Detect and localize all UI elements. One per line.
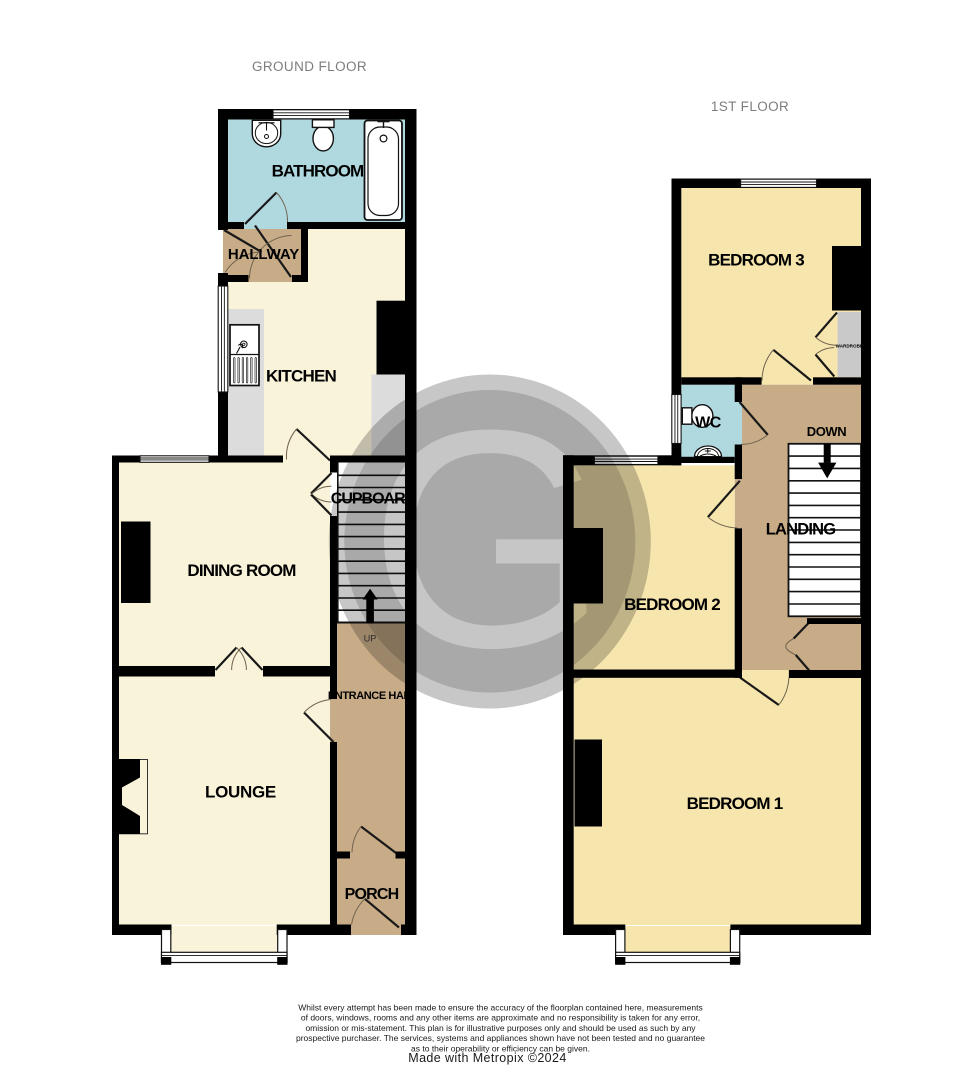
svg-text:DOWN: DOWN (807, 424, 847, 439)
svg-text:WC: WC (695, 415, 722, 432)
svg-text:BEDROOM 3: BEDROOM 3 (708, 251, 804, 270)
svg-text:BATHROOM: BATHROOM (272, 162, 364, 181)
svg-text:LOUNGE: LOUNGE (205, 783, 276, 802)
svg-text:PORCH: PORCH (345, 886, 399, 903)
svg-text:BEDROOM 1: BEDROOM 1 (687, 794, 783, 813)
svg-text:1ST FLOOR: 1ST FLOOR (711, 99, 789, 114)
svg-text:Made with Metropix ©2024: Made with Metropix ©2024 (408, 1051, 566, 1065)
svg-text:GROUND FLOOR: GROUND FLOOR (252, 59, 367, 74)
svg-text:HALLWAY: HALLWAY (228, 246, 299, 263)
svg-text:of doors, windows, rooms and a: of doors, windows, rooms and any other i… (301, 1013, 700, 1023)
svg-text:KITCHEN: KITCHEN (266, 367, 336, 386)
svg-text:prospective purchaser. The ser: prospective purchaser. The services, sys… (296, 1033, 705, 1043)
svg-text:DINING ROOM: DINING ROOM (187, 561, 296, 580)
svg-text:WARDROBE: WARDROBE (836, 343, 863, 348)
svg-text:G: G (368, 365, 609, 712)
svg-text:LANDING: LANDING (766, 521, 836, 539)
svg-text:omission or mis-statement. Thi: omission or mis-statement. This plan is … (305, 1023, 696, 1033)
svg-text:Whilst every attempt has been: Whilst every attempt has been made to en… (298, 1003, 702, 1013)
